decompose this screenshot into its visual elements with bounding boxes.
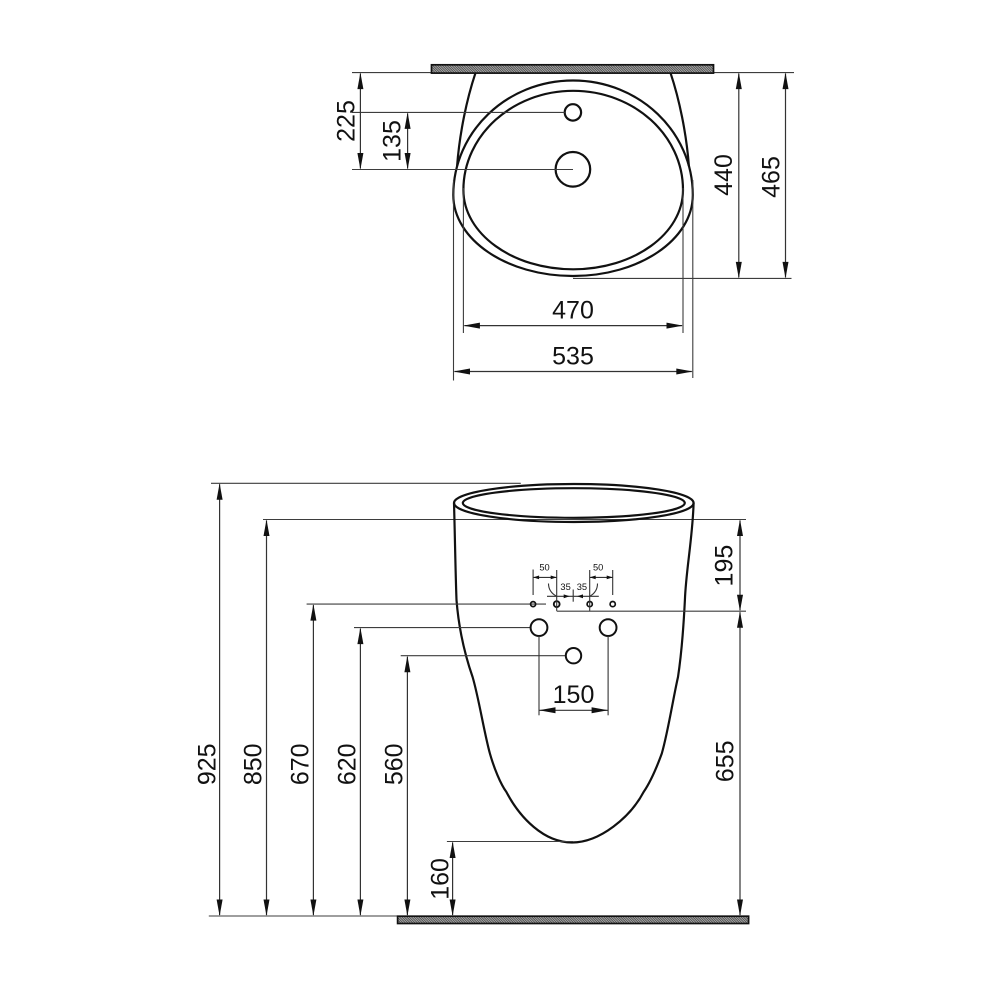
svg-text:160: 160 <box>427 858 455 900</box>
svg-text:135: 135 <box>379 120 407 162</box>
svg-text:150: 150 <box>553 681 595 709</box>
svg-text:850: 850 <box>240 743 268 785</box>
svg-text:560: 560 <box>381 743 409 785</box>
svg-text:655: 655 <box>712 740 740 782</box>
svg-text:50: 50 <box>593 563 603 573</box>
svg-text:470: 470 <box>552 297 594 325</box>
svg-text:35: 35 <box>577 582 587 592</box>
svg-text:440: 440 <box>710 154 738 196</box>
svg-text:35: 35 <box>560 582 570 592</box>
svg-text:195: 195 <box>711 545 739 587</box>
svg-text:50: 50 <box>539 563 549 573</box>
svg-text:225: 225 <box>333 100 361 142</box>
svg-text:620: 620 <box>334 743 362 785</box>
svg-text:465: 465 <box>757 156 785 198</box>
svg-text:670: 670 <box>287 743 315 785</box>
svg-text:925: 925 <box>194 743 222 785</box>
svg-text:535: 535 <box>552 343 594 371</box>
